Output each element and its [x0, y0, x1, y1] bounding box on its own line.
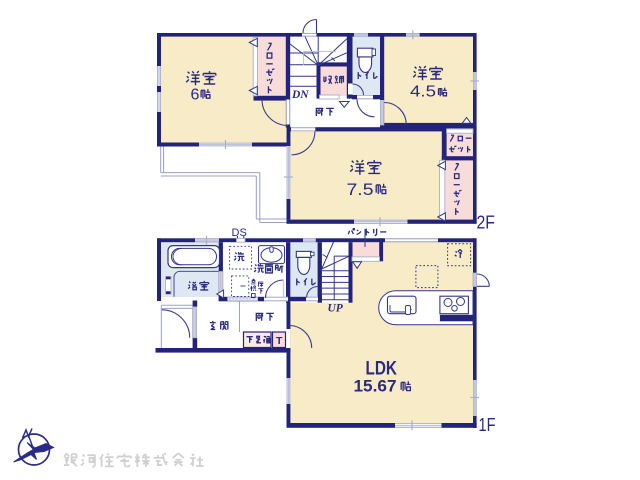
svg-text:7.5: 7.5 [347, 181, 374, 199]
svg-text:1F: 1F [479, 415, 496, 435]
svg-text:DS: DS [232, 227, 247, 239]
svg-text:2F: 2F [477, 213, 496, 233]
svg-text:DN: DN [291, 89, 309, 101]
svg-text:UP: UP [328, 303, 344, 315]
svg-text:LDK: LDK [366, 358, 398, 380]
svg-text:6: 6 [191, 87, 200, 104]
svg-text:T: T [276, 335, 283, 347]
svg-text:15.67: 15.67 [354, 378, 397, 396]
svg-text:4.5: 4.5 [410, 84, 436, 101]
